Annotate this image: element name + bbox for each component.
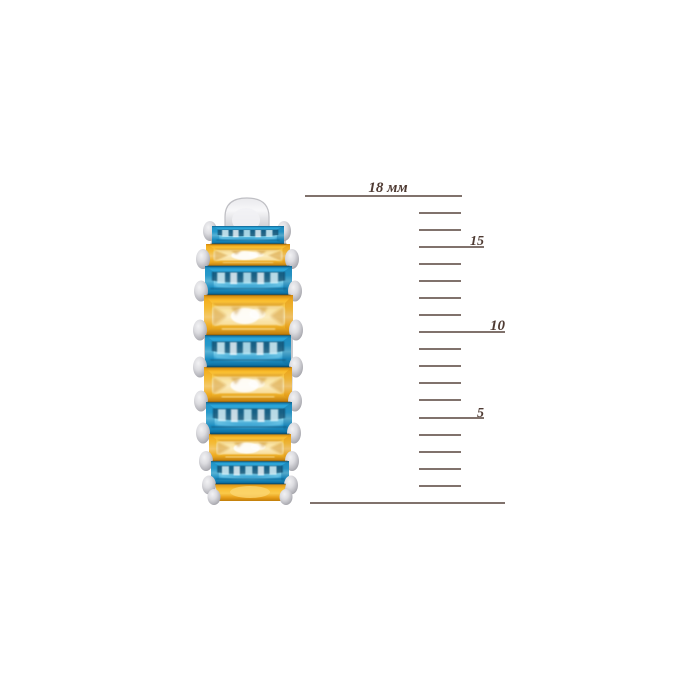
svg-text:5: 5 bbox=[477, 406, 484, 421]
svg-text:15: 15 bbox=[470, 234, 484, 249]
svg-text:18 мм: 18 мм bbox=[368, 180, 407, 196]
svg-text:10: 10 bbox=[490, 318, 506, 334]
